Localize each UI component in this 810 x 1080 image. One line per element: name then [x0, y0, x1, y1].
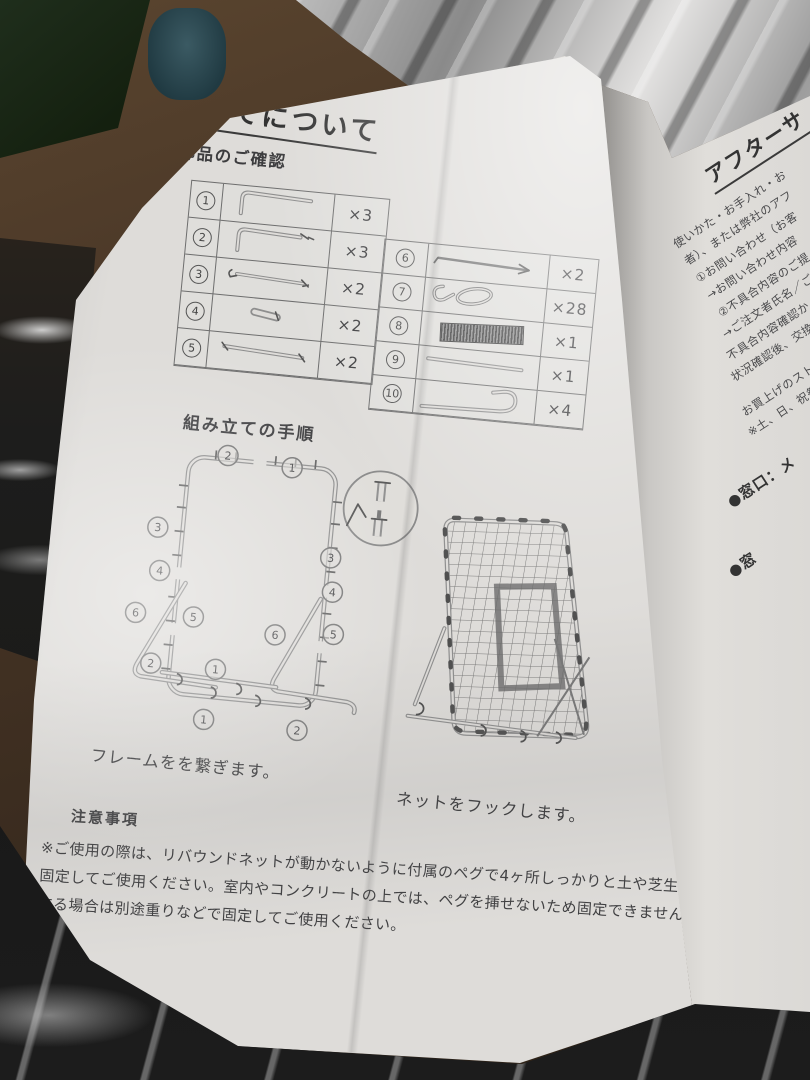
svg-text:4: 4 [156, 564, 164, 578]
svg-text:3: 3 [327, 552, 335, 566]
svg-text:1: 1 [199, 713, 207, 727]
assembly-diagrams: 2 1 3 3 4 4 6 5 6 5 2 1 1 2 [0, 422, 729, 791]
circled-marker: 6 [264, 624, 286, 646]
part-number: 3 [188, 264, 209, 285]
circled-marker: 5 [182, 606, 204, 628]
svg-text:4: 4 [328, 586, 336, 600]
teal-object [148, 8, 226, 100]
part-number: 10 [382, 383, 403, 404]
part-number: 8 [388, 315, 409, 336]
connector-detail-callout [340, 468, 421, 549]
part-qty: ×2 [333, 352, 359, 372]
svg-text:6: 6 [131, 606, 139, 620]
part-qty: ×3 [347, 205, 373, 225]
part-number: 2 [192, 227, 213, 248]
part-qty: ×2 [560, 264, 586, 284]
part-qty: ×2 [337, 315, 363, 335]
svg-text:3: 3 [154, 521, 162, 535]
frame-assembly-diagram: 2 1 3 3 4 4 6 5 6 5 2 1 1 2 [111, 433, 438, 760]
svg-text:2: 2 [293, 724, 301, 738]
part-number: 5 [181, 337, 202, 358]
svg-text:5: 5 [189, 611, 197, 625]
part-qty: ×2 [340, 279, 366, 299]
circled-marker: 2 [286, 720, 308, 742]
part-number: 7 [392, 282, 413, 303]
photo-of-instruction-sheet: アフターサ 使いかた・お手入れ・お 者）、または弊社のアフ ①お問い合わせ（お客… [0, 0, 810, 1080]
frame-caption: フレームをを繋ぎます。 [88, 742, 281, 798]
circled-marker: 3 [147, 516, 169, 538]
part-qty: ×28 [551, 297, 588, 318]
parts-table: 1 ×3 2 ×3 3 ×2 4 ×2 [170, 180, 619, 438]
svg-text:5: 5 [329, 628, 337, 642]
svg-text:1: 1 [288, 461, 296, 475]
circled-marker: 3 [320, 547, 342, 569]
circled-marker: 1 [281, 457, 303, 479]
part-qty: ×1 [553, 332, 579, 352]
circled-marker: 6 [125, 601, 147, 623]
part-number: 6 [395, 248, 416, 269]
part-icon-long-tube [212, 333, 315, 376]
part-qty: ×4 [547, 400, 573, 420]
part-qty: ×3 [344, 242, 370, 262]
part-icon-net-roll [439, 322, 524, 345]
part-qty: ×1 [550, 366, 576, 386]
svg-text:2: 2 [224, 449, 232, 463]
parts-table-right: 6 ×2 7 ×28 8 ×1 9 ×1 10 [368, 239, 599, 431]
part-number: 4 [185, 300, 206, 321]
circled-marker: 1 [193, 709, 215, 731]
part-number: 9 [385, 349, 406, 370]
parts-table-left: 1 ×3 2 ×3 3 ×2 4 ×2 [173, 180, 390, 385]
svg-text:6: 6 [271, 629, 279, 643]
svg-text:2: 2 [147, 657, 155, 671]
part-number: 1 [196, 190, 217, 211]
net-caption: ネットをフックします。 [395, 785, 587, 827]
net-hooking-diagram [401, 475, 641, 766]
svg-text:1: 1 [211, 663, 219, 677]
circled-marker: 4 [149, 560, 171, 582]
circled-marker: 2 [217, 445, 239, 467]
